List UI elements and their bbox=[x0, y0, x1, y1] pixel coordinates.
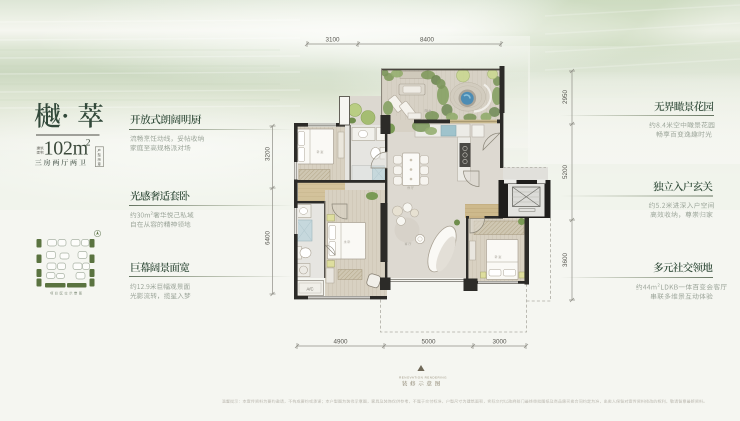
svg-text:3200: 3200 bbox=[265, 147, 272, 162]
svg-text:2: 2 bbox=[86, 138, 91, 148]
svg-text:102m: 102m bbox=[44, 138, 89, 160]
svg-text:RENOVATION RENDERING: RENOVATION RENDERING bbox=[399, 376, 447, 380]
svg-text:4900: 4900 bbox=[333, 339, 348, 346]
svg-text:3100: 3100 bbox=[325, 37, 340, 44]
svg-text:3000: 3000 bbox=[492, 339, 507, 346]
svg-text:2950: 2950 bbox=[562, 90, 569, 105]
svg-text:3600: 3600 bbox=[562, 253, 569, 268]
svg-text:5200: 5200 bbox=[562, 165, 569, 180]
svg-text:8400: 8400 bbox=[420, 37, 435, 44]
svg-text:A/C: A/C bbox=[307, 287, 314, 292]
svg-text:6400: 6400 bbox=[265, 231, 272, 246]
svg-text:5000: 5000 bbox=[421, 339, 436, 346]
